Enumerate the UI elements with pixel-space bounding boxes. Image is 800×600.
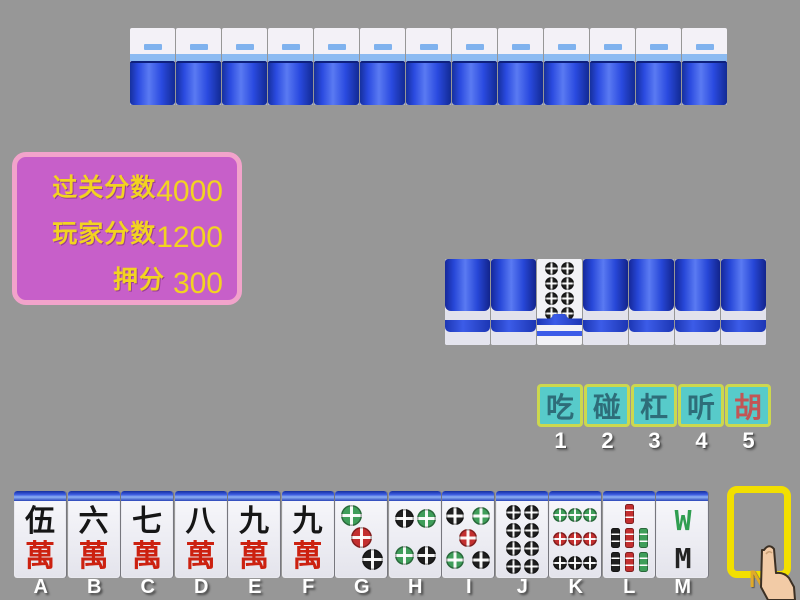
tile-layer [675,259,720,311]
dot-pip [553,508,567,522]
tile-face: 六萬 [69,501,119,577]
opponent-tile-back [498,28,543,105]
wall-tile-face-8-dots [537,259,582,345]
score-panel: 过关分数4000玩家分数1200押分300 [12,152,242,305]
tile-top-tab [328,44,346,50]
hand-tile-7-bamboo[interactable] [603,491,655,578]
action-buttons: 吃碰杠听胡 [537,384,771,427]
tile-back-cap [603,491,655,501]
tile-top-band [406,54,451,61]
tile-top-tab [650,44,668,50]
bamboo-stick [625,504,634,524]
wan-suit-char: 萬 [283,540,333,574]
dot-pip [395,546,414,565]
dot-pip [506,541,521,556]
hand-letter: C [121,576,175,599]
action-button-2[interactable]: 碰 [584,384,630,427]
score-label: 押分 [17,260,165,296]
hand-letter: A [14,576,68,599]
tile-top-band [498,54,543,61]
tile-top-band [544,54,589,61]
hand-tile-7-wan[interactable]: 七萬 [121,491,173,578]
wall-tile-back [491,259,536,345]
bamboo-stick [611,552,620,572]
tile-face [336,501,386,577]
tile-layer [721,332,766,345]
dot-pip [506,559,521,574]
tile-back-body [452,61,497,105]
opponent-tile-back [130,28,175,105]
tile-back-cap [389,491,441,501]
tile-back-cap [496,491,548,501]
action-hotkeys: 12345 [537,428,772,454]
tile-layer [445,320,490,332]
score-row: 过关分数4000 [17,163,237,209]
dot-pip [545,262,558,275]
tile-top-tab [190,44,208,50]
opponent-hand-row [130,28,727,105]
tile-back-body [176,61,221,105]
tile-back-cap [442,491,494,501]
hand-letter: M [656,576,710,599]
dot-pip [561,262,574,275]
tile-face: WM [657,501,707,577]
hand-letter: K [549,576,603,599]
tile-face [390,501,440,577]
tile-layer [445,311,490,320]
hotkey-label: 3 [631,428,678,454]
tile-layer [721,320,766,332]
action-button-5[interactable]: 胡 [725,384,771,427]
tile-back-cap [228,491,280,501]
hand-letter: I [442,576,496,599]
dot-pip [553,532,567,546]
hotkey-label: 4 [678,428,725,454]
tile-back-body [314,61,359,105]
hand-tile-5-wan[interactable]: 伍萬 [14,491,66,578]
tile-top-tab [512,44,530,50]
dot-pip [561,292,574,305]
dot-pip [395,509,414,528]
wall-tile-back [445,259,490,345]
wall-tile-back [675,259,720,345]
hand-letter: F [282,576,336,599]
dot-pips [537,259,582,312]
tile-face: 伍萬 [15,501,65,577]
tile-face: 九萬 [283,501,333,577]
wan-suit-char: 萬 [69,540,119,574]
game-table: 过关分数4000玩家分数1200押分300 吃碰杠听胡 12345 伍萬六萬七萬… [0,0,800,600]
tile-layer [675,332,720,345]
wan-number-char: 七 [122,505,172,539]
dot-pip [583,532,597,546]
tile-back-body [590,61,635,105]
hand-tile-8-wan[interactable]: 八萬 [175,491,227,578]
tile-layer [583,311,628,320]
hand-tile-8-dots[interactable] [496,491,548,578]
dot-pip [459,529,477,547]
tile-edge-line [537,331,582,336]
bamboo-w-shape: W [657,505,707,537]
tile-back-body [498,61,543,105]
dot-pip [524,505,539,520]
score-row: 玩家分数1200 [17,209,237,255]
tile-layer [629,332,674,345]
tile-back-cap [282,491,334,501]
dot-pip [446,551,464,569]
tile-layer [445,332,490,345]
hand-letter: H [389,576,443,599]
dot-pip [568,508,582,522]
tile-top-tab [144,44,162,50]
bamboo-stick [611,528,620,548]
dot-pip [506,505,521,520]
tile-back-cap [121,491,173,501]
wan-number-char: 八 [176,505,226,539]
wan-number-char: 伍 [15,505,65,539]
opponent-tile-back [590,28,635,105]
hand-tile-6-wan[interactable]: 六萬 [68,491,120,578]
hand-tile-8-bamboo[interactable]: WM [656,491,708,578]
tile-top-band [222,54,267,61]
tile-face [497,501,547,577]
dot-pip [583,508,597,522]
opponent-tile-back [682,28,727,105]
tile-layer [583,259,628,311]
tile-top-tab [374,44,392,50]
tile-top-tab [696,44,714,50]
tile-top-tab [420,44,438,50]
tile-top-band [268,54,313,61]
score-value: 4000 [156,175,237,209]
player-hand-row: 伍萬六萬七萬八萬九萬九萬WM [14,491,708,578]
bamboo-m-shape: M [657,543,707,575]
tile-back-body [360,61,405,105]
tile-top-tab [282,44,300,50]
tile-back-body [406,61,451,105]
pointing-hand-cursor [752,544,798,600]
tile-layer [491,259,536,311]
tile-layer [629,311,674,320]
tile-back-body [268,61,313,105]
tile-layer [675,311,720,320]
tile-face [443,501,493,577]
bamboo-stick [625,528,634,548]
tile-top-band [682,54,727,61]
dot-pip [341,505,362,526]
tile-back-body [130,61,175,105]
hand-tile-5-dots[interactable] [442,491,494,578]
tile-top-tab [558,44,576,50]
tile-top-band [176,54,221,61]
opponent-tile-back [360,28,405,105]
wall-tile-back [721,259,766,345]
opponent-tile-back [452,28,497,105]
opponent-tile-back [176,28,221,105]
dot-pip [524,559,539,574]
tile-back-cap [14,491,66,501]
dot-pip [524,541,539,556]
tile-face: 七萬 [122,501,172,577]
tile-layer [583,320,628,332]
hand-letter: B [68,576,122,599]
hotkey-label: 2 [584,428,631,454]
dot-pip [472,551,490,569]
wan-number-char: 九 [283,505,333,539]
wall-tile-row [445,259,766,345]
tile-back-cap [175,491,227,501]
hand-tile-9-wan[interactable]: 九萬 [282,491,334,578]
tile-layer [583,332,628,345]
bamboo-stick [639,552,648,572]
tile-layer [721,311,766,320]
tile-layer [721,259,766,311]
hand-letter: E [228,576,282,599]
tile-face [604,501,654,577]
tile-layer [445,259,490,311]
tile-back-cap [656,491,708,501]
wan-suit-char: 萬 [15,540,65,574]
hand-tile-3-dots[interactable] [335,491,387,578]
dot-pip [351,527,372,548]
hand-tile-4-dots[interactable] [389,491,441,578]
tile-back-body [544,61,589,105]
tile-top-tab [604,44,622,50]
tile-layer [491,311,536,320]
dot-pip [568,532,582,546]
action-button-4[interactable]: 听 [678,384,724,427]
dot-pip [417,509,436,528]
dot-pip [446,507,464,525]
opponent-tile-back [636,28,681,105]
tile-layer [629,259,674,311]
tile-top-band [590,54,635,61]
tile-back-body [636,61,681,105]
wan-suit-char: 萬 [176,540,226,574]
opponent-tile-back [222,28,267,105]
wan-suit-char: 萬 [229,540,279,574]
bamboo-stick [625,552,634,572]
tile-layer [629,320,674,332]
wan-number-char: 六 [69,505,119,539]
tile-top-band [452,54,497,61]
tile-top-tab [466,44,484,50]
score-value: 300 [165,267,237,301]
score-label: 玩家分数 [17,214,156,250]
dot-pip [568,556,582,570]
hand-letter: D [175,576,229,599]
hand-letter: J [496,576,550,599]
opponent-tile-back [314,28,359,105]
tile-face: 九萬 [229,501,279,577]
tile-face [550,501,600,577]
hand-letter: G [335,576,389,599]
tile-back-body [222,61,267,105]
wan-suit-char: 萬 [122,540,172,574]
dot-pip [506,523,521,538]
dot-pip [524,523,539,538]
action-button-3[interactable]: 杠 [631,384,677,427]
bamboo-stick [639,528,648,548]
hand-tile-9-wan[interactable]: 九萬 [228,491,280,578]
tile-top-band [314,54,359,61]
tile-edge-band [537,314,582,325]
wan-number-char: 九 [229,505,279,539]
action-button-1[interactable]: 吃 [537,384,583,427]
tile-top-tab [236,44,254,50]
tile-back-cap [68,491,120,501]
opponent-tile-back [268,28,313,105]
tile-layer [491,332,536,345]
score-value: 1200 [156,221,237,255]
tile-top-band [636,54,681,61]
opponent-tile-back [406,28,451,105]
dot-pip [561,277,574,290]
dot-pip [362,549,383,570]
wall-tile-back [629,259,674,345]
tile-top-band [360,54,405,61]
tile-layer [491,320,536,332]
dot-pip [472,507,490,525]
tile-layer [675,320,720,332]
tile-back-cap [549,491,601,501]
hand-letter: L [603,576,657,599]
opponent-tile-back [544,28,589,105]
wall-tile-back [583,259,628,345]
dot-pip [545,277,558,290]
tile-face: 八萬 [176,501,226,577]
hand-letter-row: ABCDEFGHIJKLM [14,576,710,599]
tile-back-body [682,61,727,105]
hotkey-label: 5 [725,428,772,454]
dot-pip [583,556,597,570]
score-row: 押分300 [17,255,237,301]
tile-back-cap [335,491,387,501]
dot-pip [417,546,436,565]
score-label: 过关分数 [17,168,156,204]
tile-top-band [130,54,175,61]
hotkey-label: 1 [537,428,584,454]
dot-pip [553,556,567,570]
dot-pip [545,292,558,305]
hand-tile-9-dots[interactable] [549,491,601,578]
